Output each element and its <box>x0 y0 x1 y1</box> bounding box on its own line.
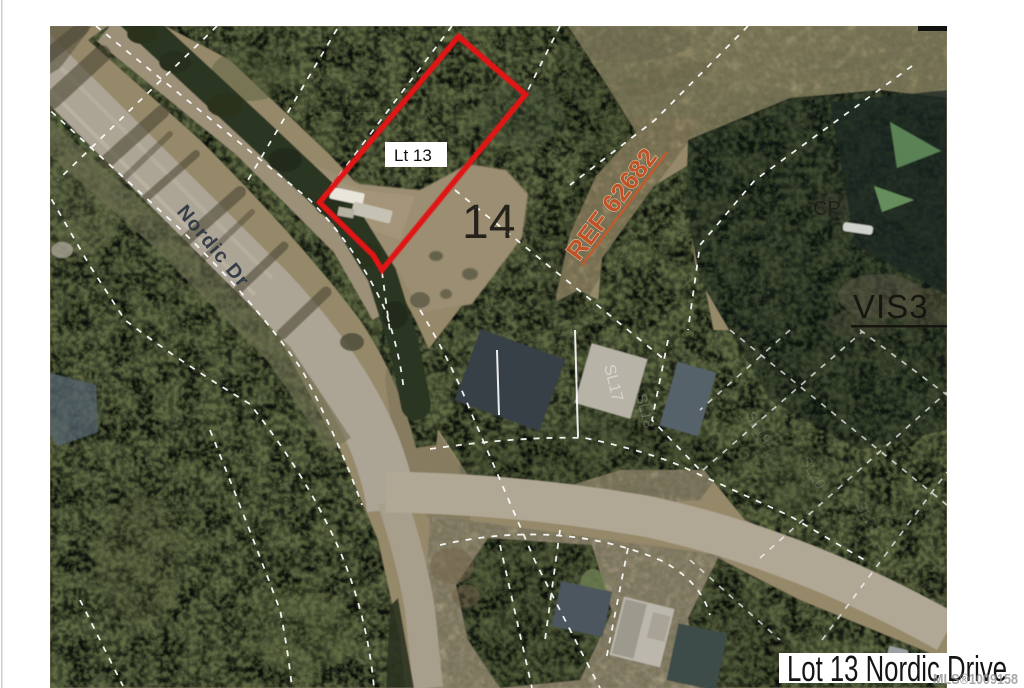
svg-text:Lt 13: Lt 13 <box>394 146 432 165</box>
svg-text:CP: CP <box>813 198 841 220</box>
svg-text:MLS®1009158: MLS®1009158 <box>933 671 1018 688</box>
svg-text:14: 14 <box>462 196 515 249</box>
svg-text:12: 12 <box>330 74 377 121</box>
svg-text:VIS3: VIS3 <box>853 288 929 325</box>
